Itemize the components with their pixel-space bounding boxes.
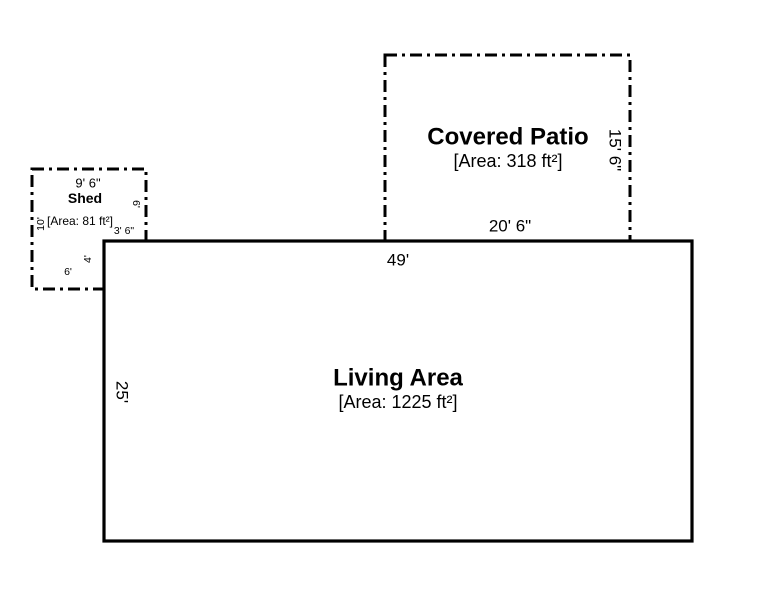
covered-patio-width-dim: 20' 6" bbox=[489, 217, 531, 236]
shed-step-height-dim: 4' bbox=[82, 255, 94, 263]
living-area-label: Living Area bbox=[333, 365, 463, 392]
covered-patio-area-label: [Area: 318 ft²] bbox=[453, 151, 562, 171]
covered-patio-label: Covered Patio bbox=[427, 124, 588, 151]
living-area-area-label: [Area: 1225 ft²] bbox=[338, 392, 457, 412]
shed-top-dim: 9' 6" bbox=[75, 176, 101, 191]
living-area-height-dim: 25' bbox=[113, 381, 132, 403]
shed-right-dim: 6' bbox=[130, 200, 142, 208]
shed-label: Shed bbox=[68, 190, 102, 206]
shed-area-label: [Area: 81 ft²] bbox=[47, 214, 113, 228]
covered-patio-height-dim: 15' 6" bbox=[606, 129, 625, 171]
shed-step-width-dim: 3' 6" bbox=[114, 225, 135, 237]
shed-bottom-dim: 6' bbox=[64, 266, 72, 278]
shed-left-dim: 10' bbox=[35, 217, 47, 231]
living-area-width-dim: 49' bbox=[387, 251, 409, 270]
floor-plan-canvas: Covered Patio [Area: 318 ft²] 20' 6" 15'… bbox=[0, 0, 768, 614]
floor-plan-diagram: Covered Patio [Area: 318 ft²] 20' 6" 15'… bbox=[0, 0, 768, 614]
